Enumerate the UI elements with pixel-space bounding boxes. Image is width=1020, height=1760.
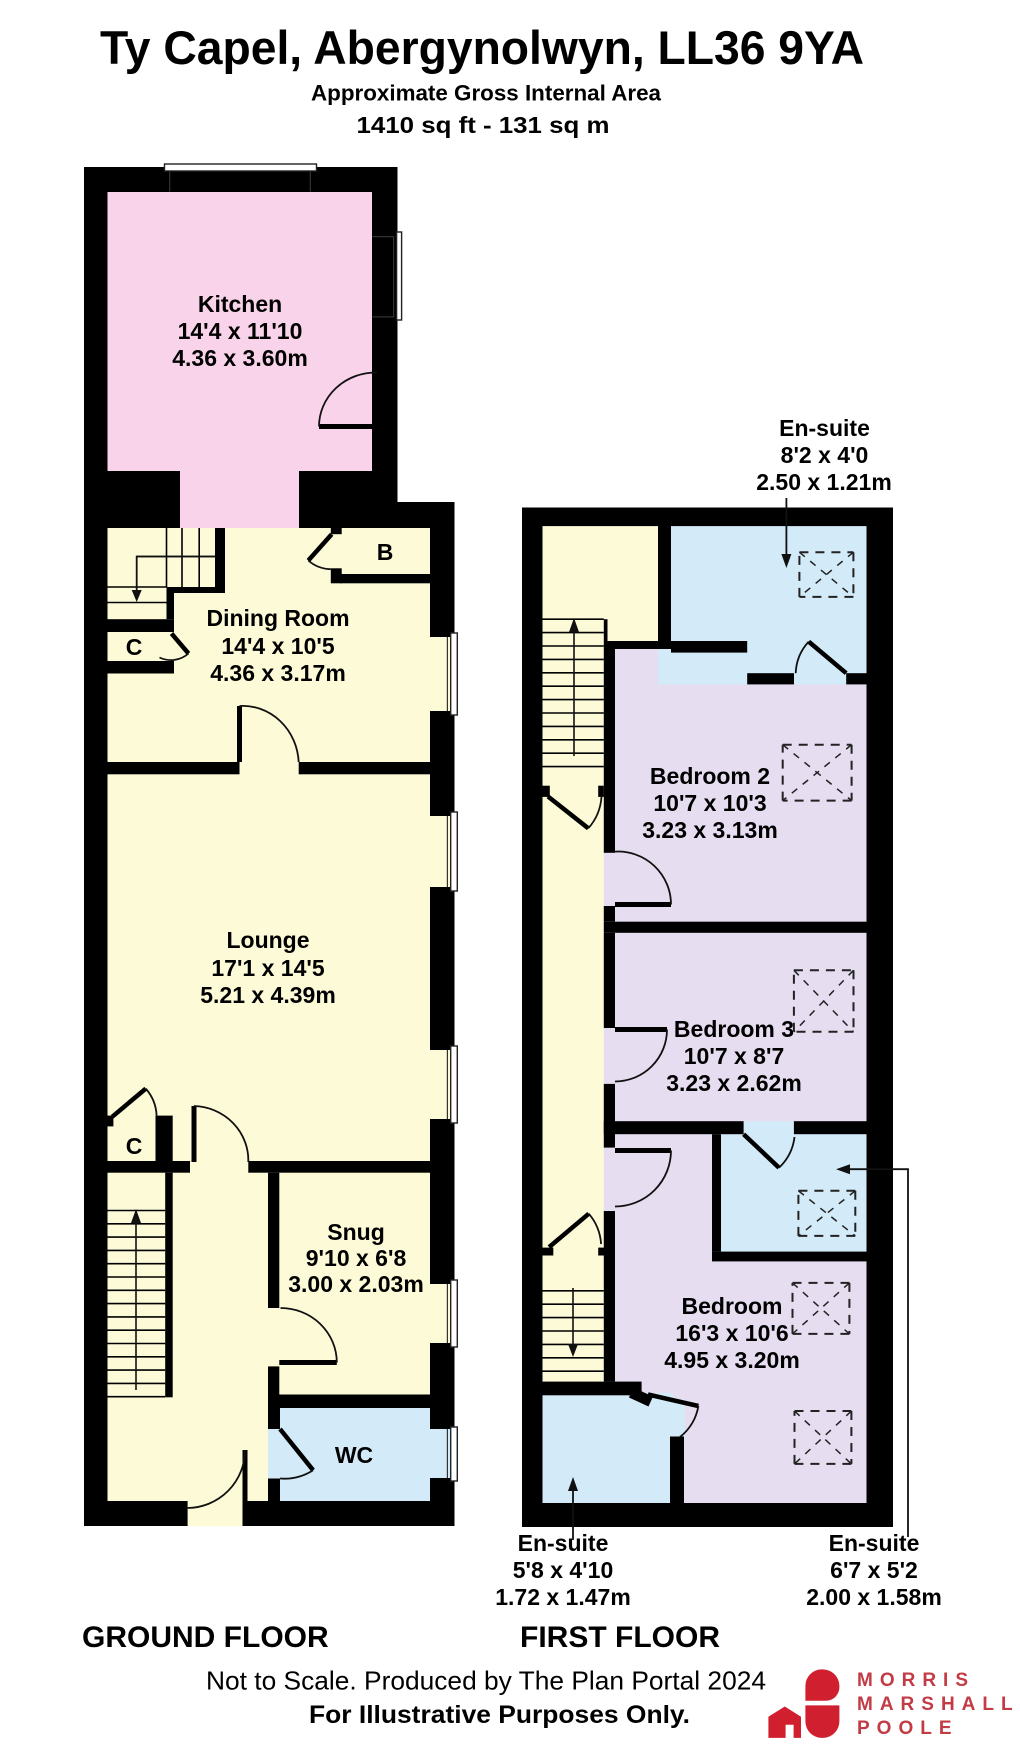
svg-text:Not to Scale. Produced by The: Not to Scale. Produced by The Plan Porta… — [206, 1666, 766, 1696]
svg-text:FIRST FLOOR: FIRST FLOOR — [520, 1621, 720, 1654]
svg-text:En-suite: En-suite — [829, 1530, 920, 1556]
svg-text:10'7 x 8'7: 10'7 x 8'7 — [684, 1043, 784, 1069]
svg-text:Kitchen: Kitchen — [198, 291, 282, 317]
svg-text:1.72 x 1.47m: 1.72 x 1.47m — [495, 1584, 631, 1610]
svg-text:2.50 x 1.21m: 2.50 x 1.21m — [756, 469, 892, 495]
svg-text:5.21 x 4.39m: 5.21 x 4.39m — [200, 982, 336, 1008]
svg-text:3.23 x 2.62m: 3.23 x 2.62m — [666, 1070, 802, 1096]
svg-text:4.95 x 3.20m: 4.95 x 3.20m — [664, 1347, 800, 1373]
svg-text:En-suite: En-suite — [518, 1530, 609, 1556]
svg-text:3.23 x 3.13m: 3.23 x 3.13m — [642, 817, 778, 843]
svg-text:8'2 x 4'0: 8'2 x 4'0 — [781, 442, 869, 468]
svg-text:Dining Room: Dining Room — [206, 605, 349, 631]
svg-text:Ty Capel, Abergynolwyn, LL36 9: Ty Capel, Abergynolwyn, LL36 9YA — [100, 21, 864, 74]
svg-text:B: B — [377, 539, 394, 565]
svg-text:C: C — [126, 634, 143, 660]
svg-text:C: C — [126, 1133, 143, 1159]
svg-text:POOLE: POOLE — [857, 1718, 959, 1739]
svg-text:4.36 x 3.60m: 4.36 x 3.60m — [172, 345, 308, 371]
svg-text:GROUND FLOOR: GROUND FLOOR — [82, 1621, 329, 1654]
svg-text:17'1 x 14'5: 17'1 x 14'5 — [211, 955, 324, 981]
svg-text:1410 sq ft - 131 sq m: 1410 sq ft - 131 sq m — [357, 112, 610, 138]
svg-text:Bedroom 3: Bedroom 3 — [674, 1016, 794, 1042]
svg-text:3.00 x 2.03m: 3.00 x 2.03m — [288, 1271, 424, 1297]
svg-text:5'8 x 4'10: 5'8 x 4'10 — [513, 1557, 613, 1583]
svg-text:Lounge: Lounge — [226, 927, 309, 953]
svg-text:MORRIS: MORRIS — [857, 1670, 975, 1691]
svg-text:2.00 x 1.58m: 2.00 x 1.58m — [806, 1584, 942, 1610]
svg-text:14'4 x 10'5: 14'4 x 10'5 — [221, 633, 334, 659]
svg-text:16'3 x 10'6: 16'3 x 10'6 — [675, 1320, 788, 1346]
svg-text:Bedroom: Bedroom — [682, 1293, 783, 1319]
svg-text:Approximate Gross Internal Are: Approximate Gross Internal Area — [311, 81, 662, 106]
svg-text:10'7 x 10'3: 10'7 x 10'3 — [653, 790, 766, 816]
svg-text:For Illustrative Purposes Only: For Illustrative Purposes Only. — [309, 1701, 690, 1729]
svg-text:WC: WC — [335, 1442, 373, 1468]
svg-text:Snug: Snug — [327, 1219, 385, 1245]
svg-text:14'4 x 11'10: 14'4 x 11'10 — [178, 318, 303, 344]
svg-text:6'7 x 5'2: 6'7 x 5'2 — [830, 1557, 918, 1583]
svg-text:En-suite: En-suite — [779, 415, 870, 441]
svg-text:4.36 x 3.17m: 4.36 x 3.17m — [210, 660, 346, 686]
svg-text:Bedroom 2: Bedroom 2 — [650, 763, 770, 789]
svg-text:MARSHALL: MARSHALL — [857, 1694, 1020, 1715]
svg-text:9'10 x 6'8: 9'10 x 6'8 — [306, 1245, 407, 1271]
